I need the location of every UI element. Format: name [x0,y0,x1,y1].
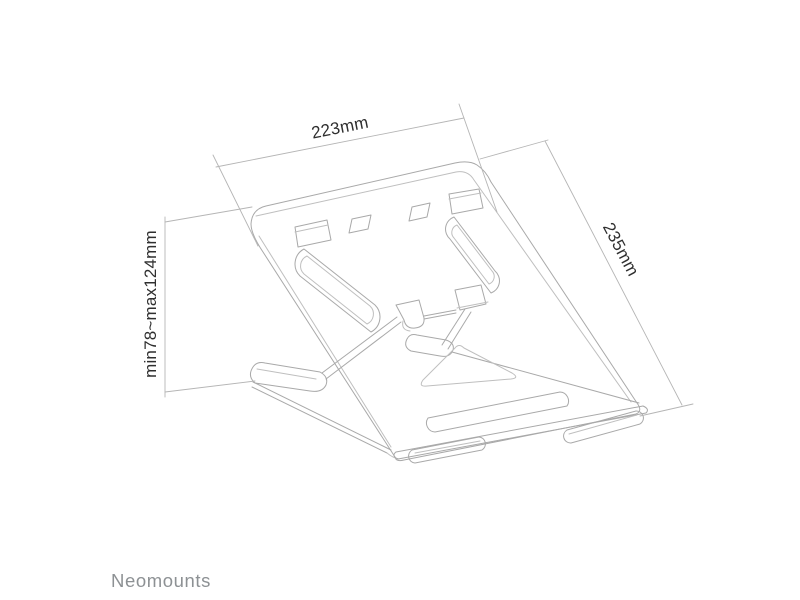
diagram-page: 223mm 235mm min78~max124mm Neomounts [0,0,800,600]
dimension-lines [165,104,693,416]
brand-wordmark: Neomounts [111,570,211,591]
height-extension-line-bottom [165,381,255,392]
stand-feet [250,335,453,392]
laptop-stand-line-drawing [250,162,647,463]
depth-dimension-label: 235mm [599,219,643,279]
laptop-stand-dimension-diagram: 223mm 235mm min78~max124mm Neomounts [0,0,800,600]
width-extension-line-left [213,155,258,246]
stand-slots [295,189,499,332]
depth-dimension-line [545,141,682,405]
height-extension-line-top [165,207,252,222]
stand-top-plate [251,162,640,461]
height-dimension-label: min78~max124mm [141,230,160,378]
stand-hinge-mechanism [322,285,488,379]
dimension-labels: 223mm 235mm min78~max124mm [141,113,643,378]
stand-base-plate [252,346,639,460]
depth-extension-line-top [480,140,548,159]
